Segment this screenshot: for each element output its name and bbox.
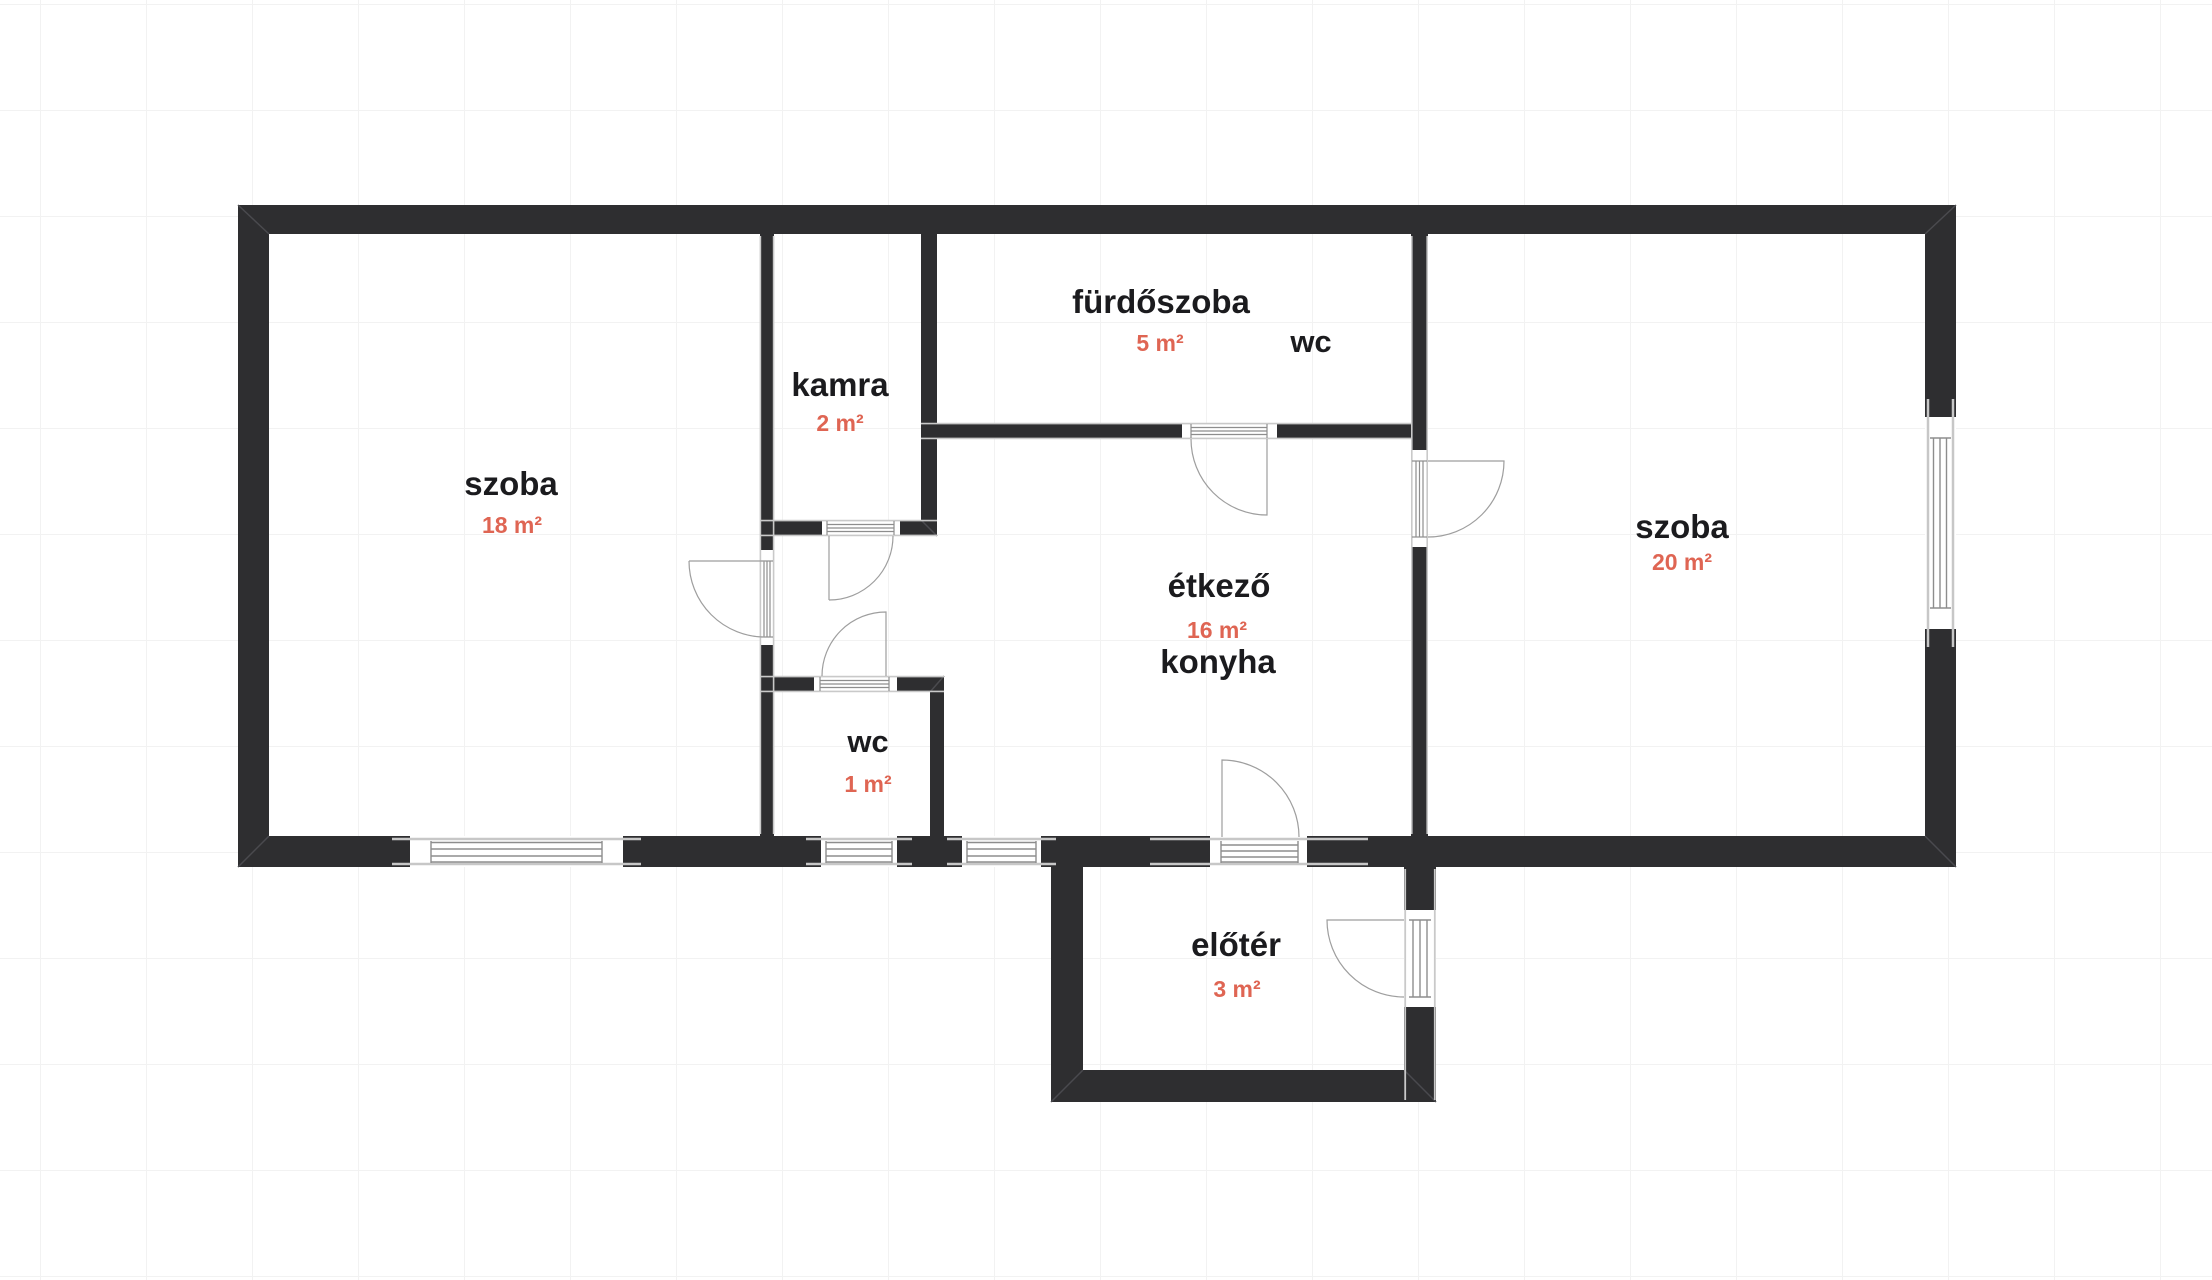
svg-text:előtér: előtér xyxy=(1191,926,1281,963)
svg-text:kamra: kamra xyxy=(791,366,889,403)
svg-text:18 m²: 18 m² xyxy=(482,512,542,538)
svg-text:wc: wc xyxy=(1289,324,1331,359)
svg-text:16 m²: 16 m² xyxy=(1187,617,1247,643)
svg-text:1 m²: 1 m² xyxy=(844,771,892,797)
svg-text:20 m²: 20 m² xyxy=(1652,549,1712,575)
svg-text:étkező: étkező xyxy=(1168,567,1271,604)
svg-text:fürdőszoba: fürdőszoba xyxy=(1072,283,1250,320)
svg-text:szoba: szoba xyxy=(1635,508,1729,545)
svg-text:3 m²: 3 m² xyxy=(1213,976,1261,1002)
svg-text:wc: wc xyxy=(846,724,888,759)
svg-text:5 m²: 5 m² xyxy=(1136,330,1184,356)
svg-text:szoba: szoba xyxy=(464,465,558,502)
svg-text:2 m²: 2 m² xyxy=(816,410,864,436)
svg-text:konyha: konyha xyxy=(1160,643,1276,680)
